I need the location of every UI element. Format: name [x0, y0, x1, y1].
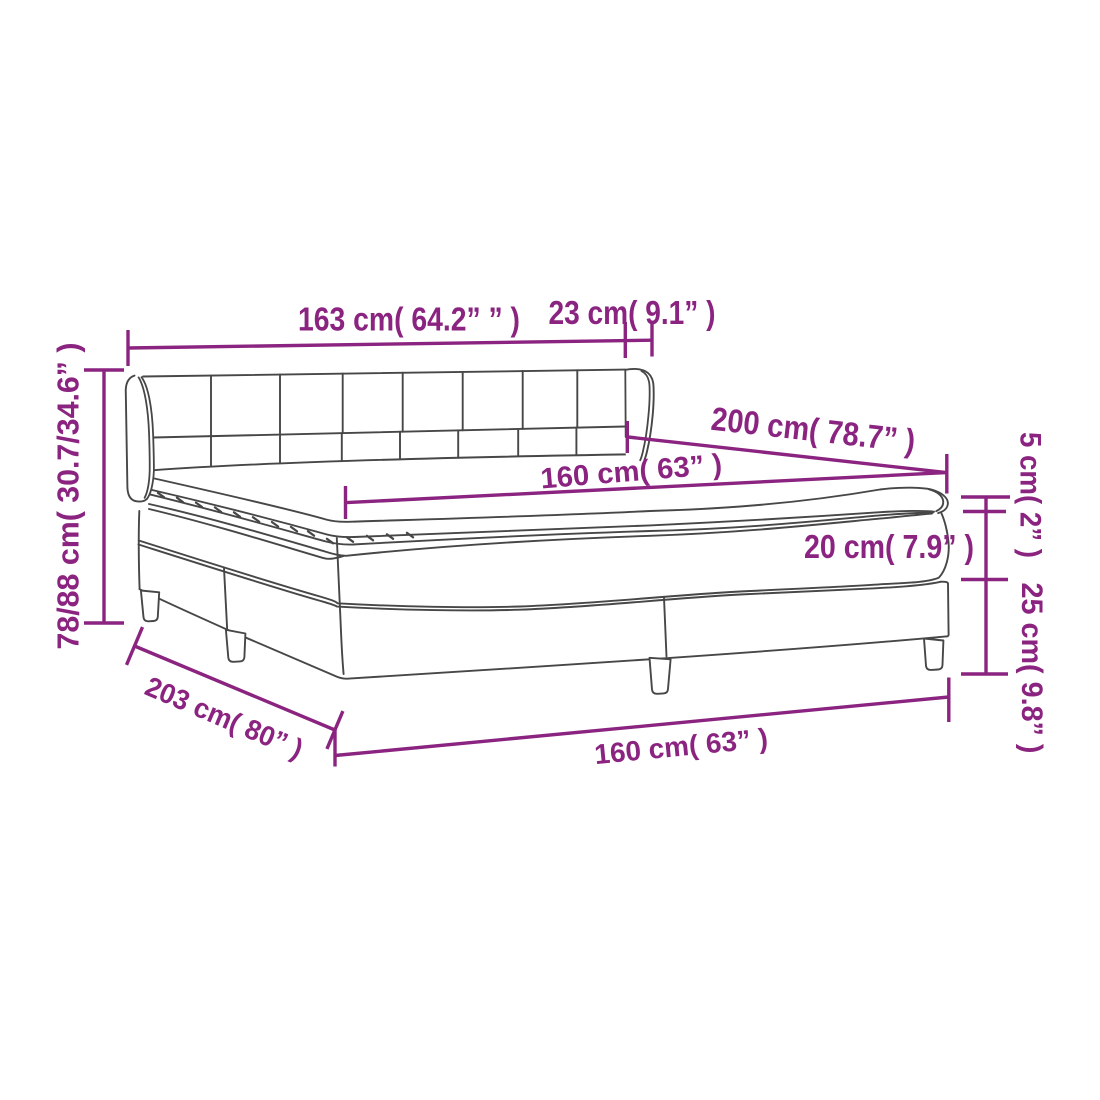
svg-text:25 cm( 9.8” ): 25 cm( 9.8” ) — [1015, 583, 1048, 754]
svg-text:163 cm( 64.2” ” ): 163 cm( 64.2” ” ) — [298, 301, 520, 338]
svg-text:20 cm( 7.9” ): 20 cm( 7.9” ) — [804, 528, 974, 565]
svg-text:23 cm( 9.1” ): 23 cm( 9.1” ) — [549, 294, 716, 331]
svg-text:5 cm( 2” ): 5 cm( 2” ) — [1014, 432, 1047, 558]
svg-text:78/88 cm( 30.7/34.6” ): 78/88 cm( 30.7/34.6” ) — [51, 343, 86, 650]
